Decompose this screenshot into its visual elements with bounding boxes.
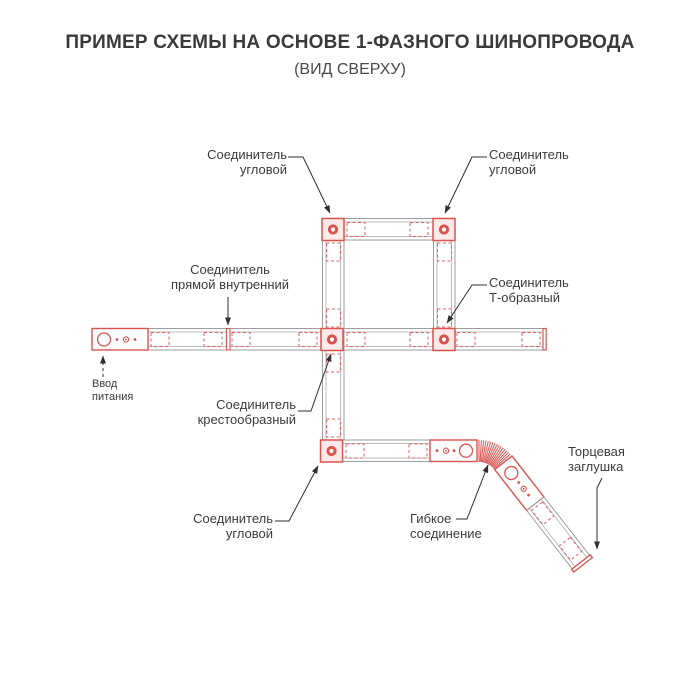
label-t-connector: Соединитель Т-образный — [489, 276, 609, 305]
label-flexible: Гибкое соединение — [410, 512, 520, 541]
corner-connector-bottom — [321, 440, 343, 462]
label-power-input: Ввод питания — [92, 378, 172, 403]
leader-corner-top-right — [445, 157, 487, 213]
corner-connector-top-right — [433, 219, 455, 241]
track-end-cap-right — [543, 329, 546, 351]
straight-internal-connector — [227, 329, 231, 351]
leader-corner-bottom — [275, 466, 318, 521]
corner-connector-top-left — [322, 219, 344, 241]
leader-flexible — [456, 465, 488, 519]
label-end-cap: Торцевая заглушка — [568, 445, 668, 474]
label-cross-connector: Соединитель крестообразный — [158, 398, 296, 427]
leader-corner-top-left — [288, 157, 330, 213]
diagonal-track — [527, 497, 590, 569]
label-corner-top-left: Соединитель угловой — [175, 148, 287, 177]
power-input-box — [92, 329, 148, 351]
label-corner-top-right: Соединитель угловой — [489, 148, 609, 177]
label-corner-bottom: Соединитель угловой — [142, 512, 273, 541]
leader-end-cap — [597, 478, 602, 549]
busbar-scheme-diagram — [0, 0, 700, 700]
flexible-joint-box — [430, 440, 477, 462]
label-straight-internal: Соединитель прямой внутренний — [150, 263, 310, 292]
t-connector — [433, 329, 455, 351]
cross-connector — [321, 329, 343, 351]
